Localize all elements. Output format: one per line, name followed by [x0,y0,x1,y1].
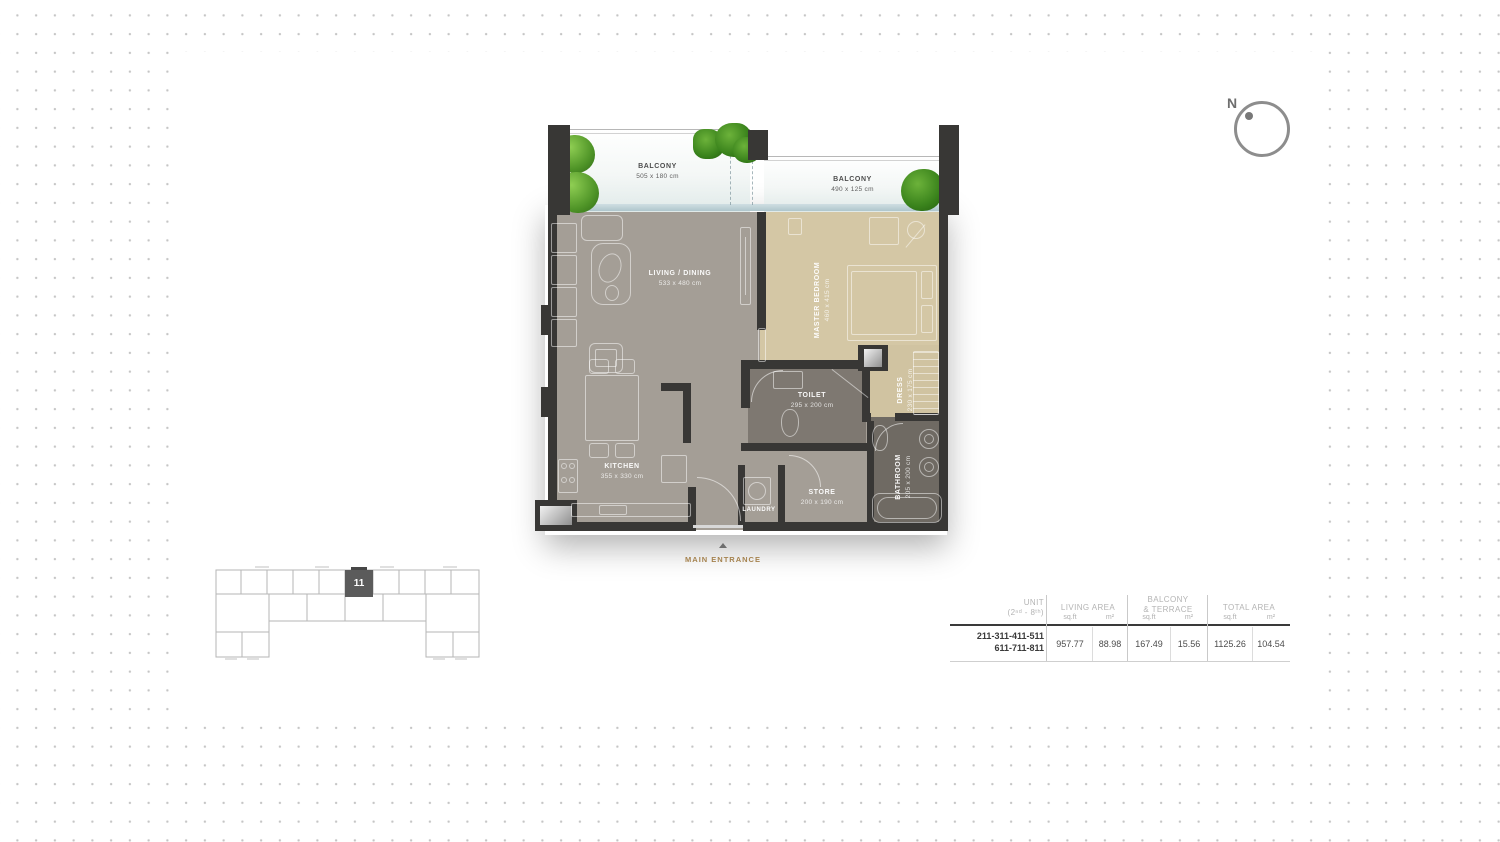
unit-numbers-line1: 211-311-411-511 [950,630,1044,642]
furniture-basin [924,434,934,444]
value-living-sqft: 957.77 [1048,639,1092,649]
sub-header-m2: m² [1092,614,1128,621]
furniture-pillow [921,271,933,299]
compass-north-label: N [1227,95,1237,111]
value-total-m2: 104.54 [1252,639,1290,649]
room-label-master-bedroom: MASTER BEDROOM 460 x 415 cm [813,240,833,360]
entrance-threshold [693,525,743,528]
key-plan-unit-marker: 11 [345,570,373,597]
wall-column [939,125,959,215]
sub-header-m2: m² [1252,614,1290,621]
furniture-wc [781,409,799,437]
table-divider [1046,595,1047,661]
furniture-tv-unit [745,237,746,295]
room-label-bathroom: BATHROOM 205 x 200 cm [894,417,914,537]
col-header-living: LIVING AREA [1048,603,1128,613]
room-dims: 460 x 415 cm [823,240,833,360]
room-dims: 533 x 480 cm [620,279,740,289]
balcony-divider-dashed [752,161,753,205]
table-divider [1127,595,1128,661]
furniture-wardrobe [869,217,899,245]
room-dims: 295 x 200 cm [752,401,872,411]
value-balcony-sqft: 167.49 [1128,639,1170,649]
wall-column [748,130,768,160]
wall-toilet-top [748,360,870,369]
room-name: BALCONY [595,162,720,172]
room-dims: 355 x 330 cm [562,472,682,482]
furniture-sofa [551,223,577,253]
unit-numbers-line2: 611-711-811 [950,642,1044,654]
room-name: TOILET [752,391,872,401]
room-label-living: LIVING / DINING 533 x 480 cm [620,269,740,289]
furniture-counter [571,503,691,517]
value-living-m2: 88.98 [1092,639,1128,649]
wall-living-bedroom [757,212,766,330]
wall-column [541,387,557,417]
wall-bath-top [865,413,871,421]
room-dims: 205 x 200 cm [904,417,914,537]
compass-icon [1234,101,1290,157]
unit-numbers: 211-311-411-511 611-711-811 [950,630,1044,654]
wall-toilet-left [741,360,750,408]
room-label-laundry: LAUNDRY [709,505,809,515]
furniture-sink [599,505,627,515]
key-plan: 11 [215,566,480,662]
room-name: LAUNDRY [709,505,809,515]
room-label-balcony-left: BALCONY 505 x 180 cm [595,162,720,182]
compass-needle-dot [1245,112,1253,120]
furniture-chair [589,359,609,374]
furniture-wardrobe-rail [913,351,939,415]
room-label-kitchen: KITCHEN 355 x 330 cm [562,462,682,482]
col-header-total: TOTAL AREA [1208,603,1290,613]
col-header-unit: UNIT (2ⁿᵈ - 8ᵗʰ) [950,598,1044,618]
furniture-sofa [551,287,577,317]
room-dims: 490 x 125 cm [790,185,915,195]
room-label-balcony-right: BALCONY 490 x 125 cm [790,175,915,195]
room-name: MASTER BEDROOM [813,240,823,360]
wall-column [548,125,570,215]
room-name: BATHROOM [894,417,904,537]
furniture-sofa [551,319,577,347]
furniture-decor [605,285,619,301]
unit-subtitle: (2ⁿᵈ - 8ᵗʰ) [950,608,1044,618]
table-bottom-rule [950,661,1290,662]
wall-bottom [557,522,693,531]
value-total-sqft: 1125.26 [1208,639,1252,649]
wall-kitchen-stub [661,383,691,391]
furniture-chair [615,443,635,458]
ceiling-fan-icon [907,221,925,239]
floor-plan: BALCONY 505 x 180 cm BALCONY 490 x 125 c… [535,125,965,557]
furniture-basin [924,462,934,472]
wall-toilet-bottom [741,443,871,451]
main-entrance-label: MAIN ENTRANCE [673,535,773,564]
sub-header-sqft: sq.ft [1048,614,1092,621]
balcony-glass-door [568,204,942,211]
sliding-door-bedroom [758,328,766,362]
room-name: STORE [762,488,882,498]
table-header-rule [950,624,1290,626]
unit-title: UNIT [950,598,1044,608]
room-name: KITCHEN [562,462,682,472]
furniture-sofa [581,215,623,241]
room-label-toilet: TOILET 295 x 200 cm [752,391,872,411]
sub-header-sqft: sq.ft [1128,614,1170,621]
wall-right [939,212,948,530]
sub-header-m2: m² [1170,614,1208,621]
room-name: LIVING / DINING [620,269,740,279]
sub-header-sqft: sq.ft [1208,614,1252,621]
table-divider [1207,595,1208,661]
furniture-sofa [551,255,577,285]
wall-bottom [743,522,948,531]
furniture-dining-table [585,375,639,441]
room-dims: 505 x 180 cm [595,172,720,182]
furniture-nightstand [788,218,802,235]
col-header-balcony: BALCONY & TERRACE [1128,595,1208,615]
room-name: BALCONY [790,175,915,185]
shaft-inner [864,349,882,367]
furniture-chair [589,443,609,458]
area-table: UNIT (2ⁿᵈ - 8ᵗʰ) LIVING AREA BALCONY & T… [950,593,1290,665]
utility-inner [540,506,572,525]
value-balcony-m2: 15.56 [1170,639,1208,649]
furniture-pillow [921,305,933,333]
furniture-chair [615,359,635,374]
page: N [0,0,1500,842]
balcony-title-line1: BALCONY [1128,595,1208,605]
entrance-text: MAIN ENTRANCE [673,555,773,564]
furniture-bed [851,271,917,335]
wall-kitchen-stub [683,391,691,443]
entrance-arrow-icon [719,543,727,548]
balcony-rail-line [764,160,942,161]
